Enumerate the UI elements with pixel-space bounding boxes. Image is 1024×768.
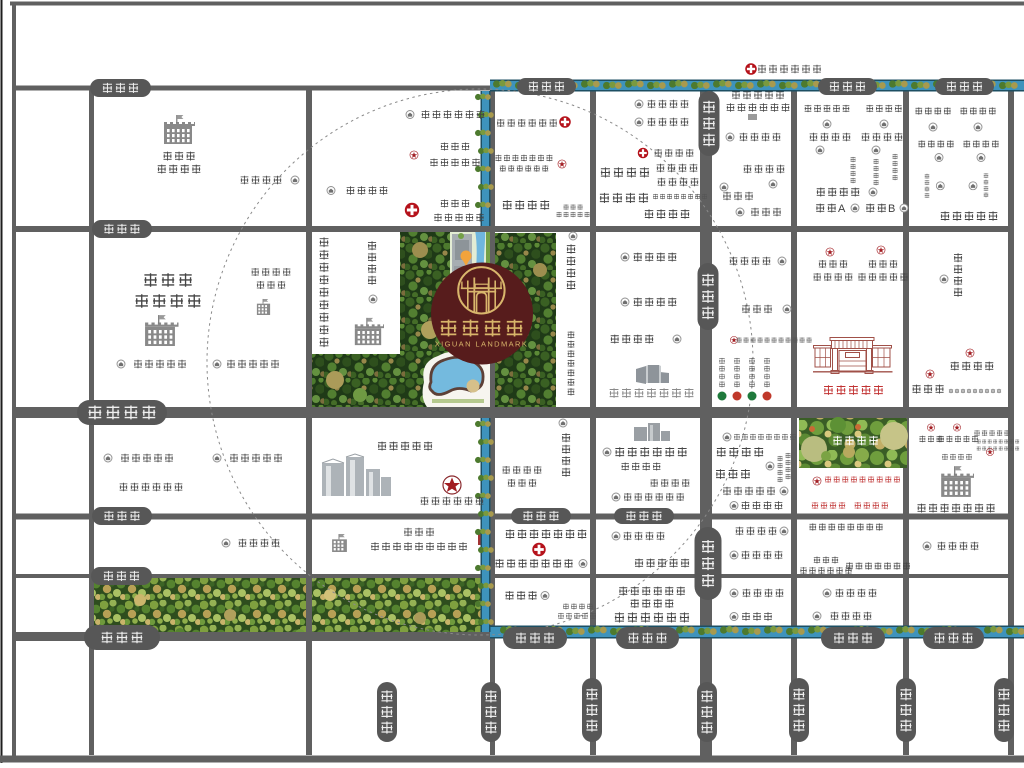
svg-text:B: B <box>888 203 895 215</box>
svg-text:XIGUAN LANDMARK: XIGUAN LANDMARK <box>435 340 529 349</box>
svg-text:A: A <box>838 203 846 215</box>
